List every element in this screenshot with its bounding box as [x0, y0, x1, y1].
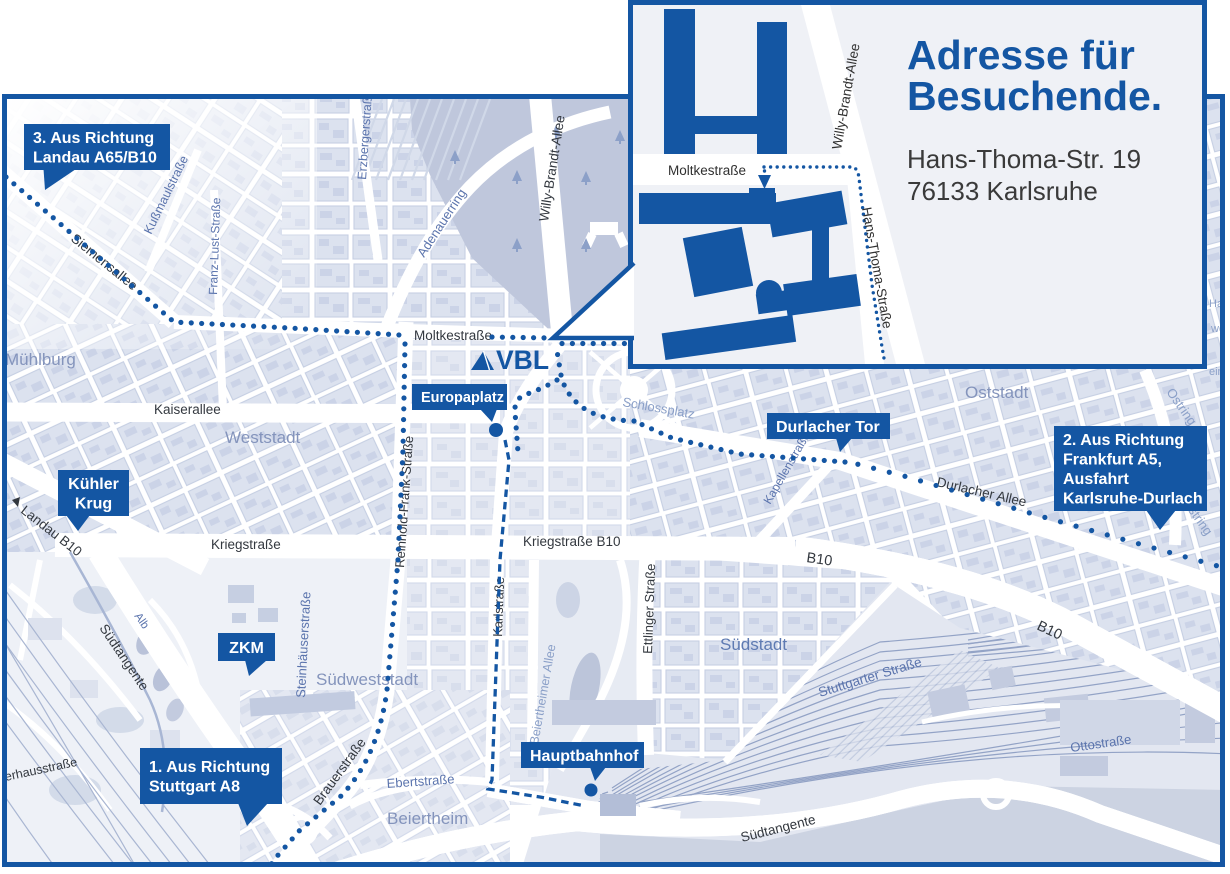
- svg-text:1. Aus Richtung: 1. Aus Richtung: [149, 759, 270, 776]
- svg-text:Moltkestraße: Moltkestraße: [414, 328, 492, 343]
- svg-text:Landau A65/B10: Landau A65/B10: [33, 150, 157, 167]
- svg-text:ZKM: ZKM: [229, 640, 264, 657]
- svg-text:76133 Karlsruhe: 76133 Karlsruhe: [907, 176, 1098, 206]
- svg-text:Frankfurt A5,: Frankfurt A5,: [1063, 452, 1162, 469]
- svg-text:Hauptbahnhof: Hauptbahnhof: [530, 748, 639, 765]
- svg-text:Oststadt: Oststadt: [965, 383, 1029, 402]
- svg-text:Durlacher Tor: Durlacher Tor: [776, 419, 880, 436]
- svg-text:Krug: Krug: [75, 496, 112, 513]
- svg-text:Südweststadt: Südweststadt: [316, 670, 418, 689]
- svg-text:Kriegstraße: Kriegstraße: [211, 537, 281, 552]
- svg-text:Adresse für: Adresse für: [907, 32, 1135, 78]
- svg-text:Europaplatz: Europaplatz: [421, 390, 504, 406]
- svg-text:Karlsruhe-Durlach: Karlsruhe-Durlach: [1063, 490, 1203, 507]
- svg-text:Weststadt: Weststadt: [225, 428, 301, 447]
- svg-text:2. Aus Richtung: 2. Aus Richtung: [1063, 432, 1184, 449]
- svg-text:Südstadt: Südstadt: [720, 635, 787, 654]
- svg-text:Moltkestraße: Moltkestraße: [668, 163, 746, 178]
- svg-text:Besuchende.: Besuchende.: [907, 73, 1162, 119]
- svg-text:3. Aus Richtung: 3. Aus Richtung: [33, 130, 154, 147]
- svg-text:VBL: VBL: [496, 345, 549, 375]
- svg-text:Ausfahrt: Ausfahrt: [1063, 471, 1129, 488]
- svg-text:Beiertheim: Beiertheim: [387, 809, 468, 828]
- svg-text:Kaiserallee: Kaiserallee: [154, 402, 221, 417]
- svg-text:Ettlinger Straße: Ettlinger Straße: [640, 563, 658, 654]
- svg-text:Kühler: Kühler: [68, 476, 119, 493]
- svg-text:Stuttgart A8: Stuttgart A8: [149, 779, 240, 796]
- svg-text:Kriegstraße B10: Kriegstraße B10: [523, 534, 621, 549]
- svg-text:Hans-Thoma-Str. 19: Hans-Thoma-Str. 19: [907, 144, 1141, 174]
- svg-text:Mühlburg: Mühlburg: [5, 350, 76, 369]
